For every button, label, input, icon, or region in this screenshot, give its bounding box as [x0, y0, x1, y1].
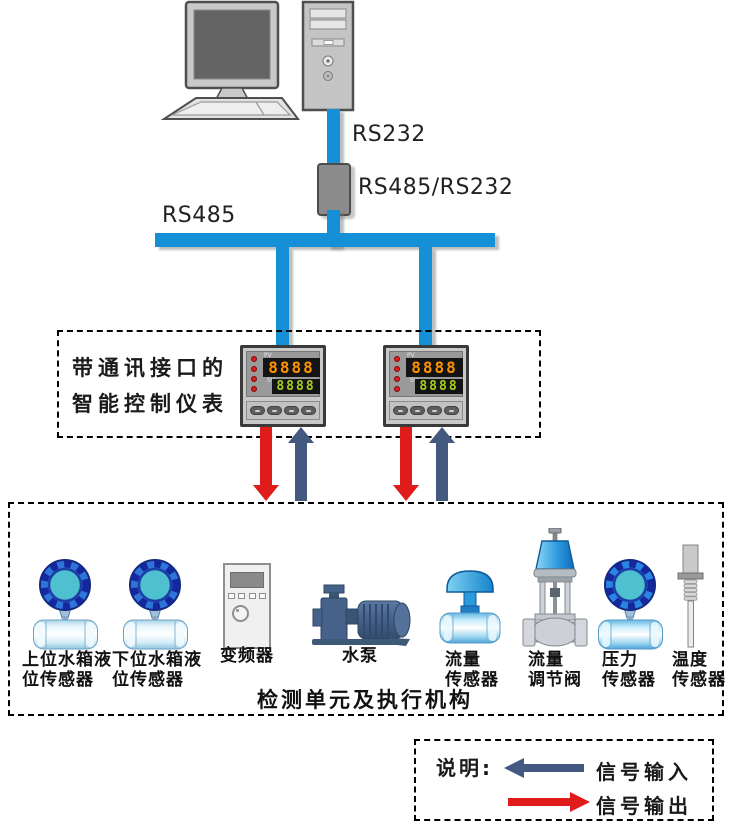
legend-input-arrow-icon [504, 758, 584, 778]
lower-tank-level-sensor-icon [122, 558, 192, 650]
controller-button [444, 406, 459, 415]
controller-button [301, 406, 316, 415]
led-indicator [251, 376, 257, 382]
led-indicator [394, 366, 400, 372]
signal-output-arrow [393, 427, 419, 501]
pv-readout: 8888 [263, 358, 320, 377]
upper-tank-level-sensor-icon [32, 558, 102, 650]
controller-display-panel: PV 8888 SV 8888 [246, 351, 320, 397]
legend-output-arrow-icon [508, 792, 588, 812]
led-indicator [394, 386, 400, 392]
signal-output-arrow [253, 427, 279, 501]
smart-controller-2: PV 8888 SV 8888 [383, 345, 469, 427]
led-indicator [394, 376, 400, 382]
legend-output-label: 信号输出 [596, 790, 692, 819]
controller-caption-line1: 带通讯接口的 [72, 352, 228, 382]
flow-sensor-icon [439, 564, 501, 650]
controller-button [250, 406, 265, 415]
rs485-label: RS485 [162, 203, 236, 228]
frequency-converter-icon [223, 563, 271, 649]
diagram-canvas: RS232 RS485/RS232 RS485 带通讯接口的 智能控制仪表 PV… [0, 0, 730, 823]
smart-controller-1: PV 8888 SV 8888 [240, 345, 326, 427]
controller-keypad [246, 401, 320, 420]
rs232-cable [327, 109, 340, 165]
vfd-knob [232, 605, 249, 622]
device-label: 变频器 [212, 646, 282, 666]
sv-readout: 8888 [272, 379, 320, 394]
led-indicator [394, 356, 400, 362]
device-label: 水泵 [325, 646, 395, 666]
computer-workstation-icon [160, 0, 360, 125]
water-pump-icon [306, 578, 414, 650]
vfd-keys [228, 593, 266, 599]
temperature-sensor-icon [676, 543, 704, 651]
rs485-bus [155, 233, 495, 247]
controller-caption-line2: 智能控制仪表 [72, 388, 228, 418]
sv-readout: 8888 [415, 379, 463, 394]
controller-keypad [389, 401, 463, 420]
converter-label: RS485/RS232 [358, 175, 513, 200]
led-indicator [251, 366, 257, 372]
controller-button [410, 406, 425, 415]
controller-button [393, 406, 408, 415]
signal-input-arrow [429, 427, 455, 501]
vfd-display [230, 572, 264, 588]
device-box-title: 检测单元及执行机构 [8, 684, 722, 714]
led-indicator [251, 386, 257, 392]
signal-input-arrow [288, 427, 314, 501]
legend-title: 说明: [436, 752, 493, 781]
controller-button [284, 406, 299, 415]
rs485-rs232-converter [317, 163, 351, 216]
rs232-label: RS232 [352, 122, 426, 147]
controller-button [267, 406, 282, 415]
legend-input-label: 信号输入 [596, 756, 692, 785]
pressure-sensor-icon [595, 558, 665, 650]
led-indicator [251, 356, 257, 362]
pv-readout: 8888 [406, 358, 463, 377]
flow-control-valve-icon [522, 528, 588, 650]
controller-button [427, 406, 442, 415]
controller-display-panel: PV 8888 SV 8888 [389, 351, 463, 397]
